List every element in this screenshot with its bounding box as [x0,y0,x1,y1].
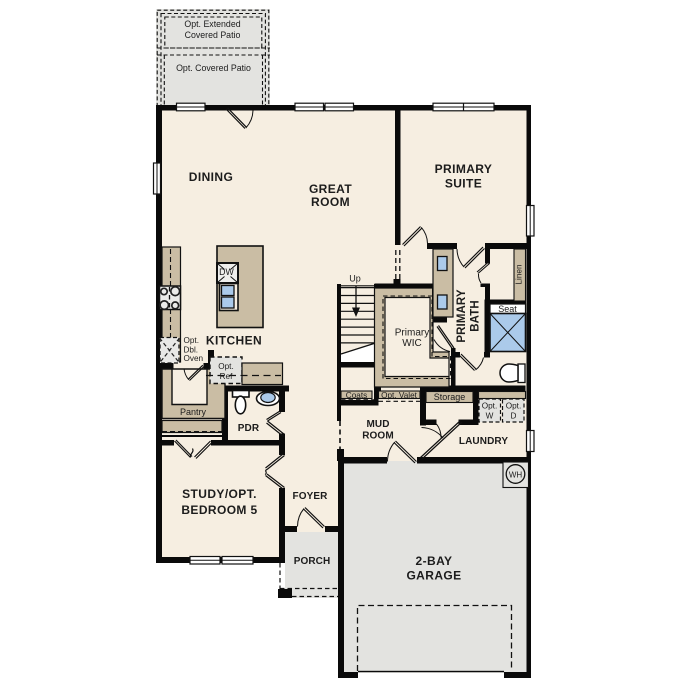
svg-text:Ref: Ref [220,372,233,381]
svg-text:Opt.: Opt. [482,402,497,411]
svg-text:PRIMARY: PRIMARY [456,289,468,343]
svg-text:Storage: Storage [434,392,466,402]
svg-text:Seat: Seat [498,304,517,314]
svg-text:2-BAY: 2-BAY [416,554,453,568]
svg-text:WIC: WIC [402,338,421,349]
svg-text:WH: WH [509,471,523,480]
svg-text:KITCHEN: KITCHEN [206,334,262,348]
svg-text:STUDY/OPT.: STUDY/OPT. [182,487,257,501]
svg-text:ROOM: ROOM [362,431,394,442]
svg-text:Opt. Extended: Opt. Extended [184,19,240,29]
svg-text:GREAT: GREAT [309,182,352,196]
svg-text:D: D [511,412,517,421]
svg-text:SUITE: SUITE [445,177,482,191]
svg-text:W: W [486,412,494,421]
svg-text:PDR: PDR [238,423,260,434]
svg-text:Up: Up [349,274,361,284]
svg-text:Opt.: Opt. [218,362,233,371]
svg-text:Opt. Covered Patio: Opt. Covered Patio [176,63,251,73]
svg-text:Opt.: Opt. [184,336,199,345]
svg-text:Oven: Oven [184,354,204,363]
svg-text:DINING: DINING [189,170,233,184]
svg-text:PRIMARY: PRIMARY [435,162,493,176]
svg-text:Coats: Coats [346,391,367,400]
svg-text:ROOM: ROOM [311,195,350,209]
svg-text:Opt. Valet: Opt. Valet [381,391,418,400]
svg-text:Pantry: Pantry [180,407,207,417]
svg-text:FOYER: FOYER [293,491,329,502]
svg-text:BEDROOM 5: BEDROOM 5 [181,503,257,517]
svg-text:Linen: Linen [515,264,524,284]
svg-text:Primary: Primary [395,328,429,339]
svg-text:MUD: MUD [366,419,389,430]
svg-text:Opt.: Opt. [506,402,521,411]
svg-text:BATH: BATH [470,300,482,332]
svg-text:LAUNDRY: LAUNDRY [459,436,508,447]
svg-text:Covered Patio: Covered Patio [185,30,241,40]
svg-text:DW: DW [219,267,234,277]
svg-text:GARAGE: GARAGE [406,569,461,583]
svg-text:PORCH: PORCH [294,556,331,567]
